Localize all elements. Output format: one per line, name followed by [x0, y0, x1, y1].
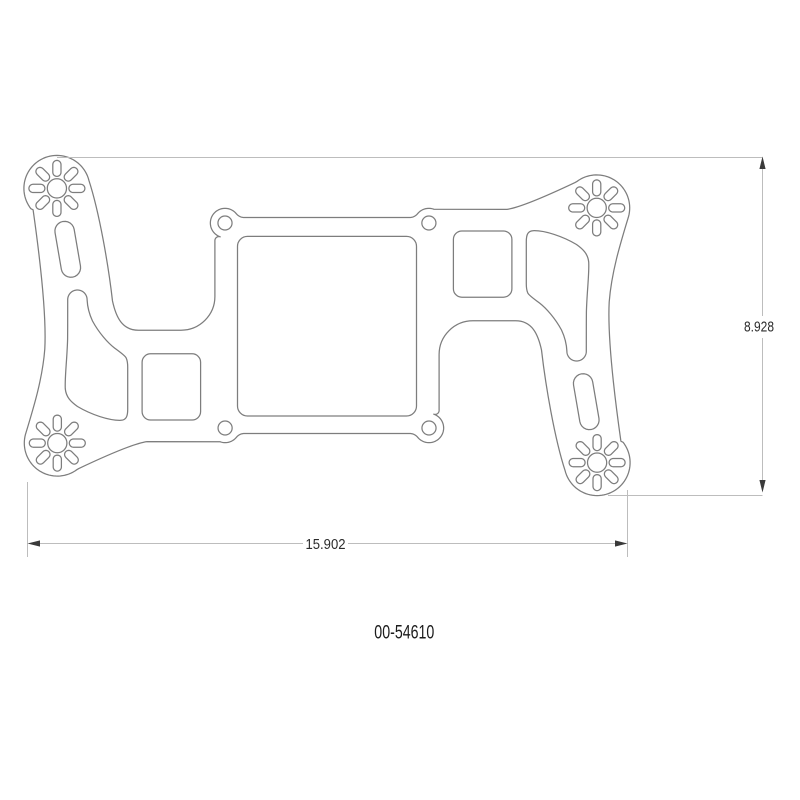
svg-text:8.928: 8.928: [744, 319, 774, 335]
svg-text:00-54610: 00-54610: [374, 623, 434, 644]
svg-text:15.902: 15.902: [306, 537, 346, 553]
